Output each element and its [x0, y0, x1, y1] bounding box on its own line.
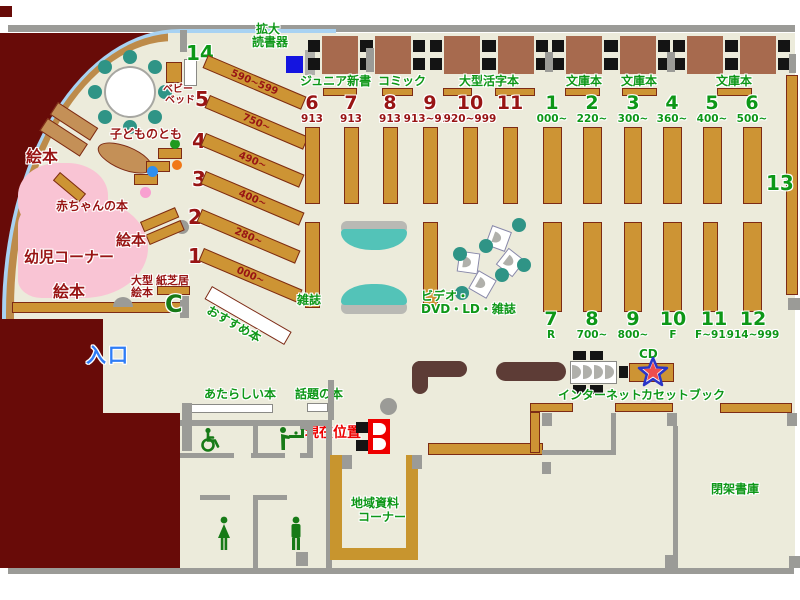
- wall-segment: [253, 495, 258, 568]
- wall-segment: [200, 495, 230, 500]
- stack-shelf: [663, 222, 682, 312]
- label-junior-shinsho: ジュニア新書: [300, 75, 371, 89]
- corner-mark: [0, 6, 12, 17]
- baby-changing-icon: [276, 425, 306, 451]
- pillar: [542, 413, 552, 426]
- pillar: [542, 462, 551, 474]
- service-counter: [496, 362, 566, 381]
- babybed-label-1: ベビー: [163, 84, 193, 96]
- reading-table: [322, 36, 358, 74]
- label-chiiki-2: コーナー: [358, 511, 406, 525]
- label-internet: インターネット: [558, 389, 642, 403]
- men-toilet-icon: [287, 516, 305, 552]
- label-chiiki-1: 地域資料: [351, 497, 399, 511]
- stack-shelf: [703, 127, 722, 204]
- pillar: [366, 48, 374, 72]
- pillar: [788, 298, 800, 310]
- library-floor-map: ベビー ベッド 絵本 子どものとも 赤ちゃんの本 幼児コーナー 絵本 絵本 大型…: [0, 0, 800, 600]
- stack-shelf: [743, 222, 762, 312]
- reading-table: [444, 36, 480, 74]
- stack-shelf: [503, 127, 518, 204]
- pillar: [296, 552, 308, 566]
- label-yoji-corner: 幼児コーナー: [24, 249, 114, 266]
- women-toilet-icon: [215, 516, 233, 552]
- label-kakudai-2: 読書器: [252, 36, 288, 50]
- topical-books-shelf: [307, 403, 328, 412]
- phone-icon: C: [165, 291, 183, 319]
- stack-shelf: [305, 127, 320, 204]
- label-video-2: DVD・LD・雑誌: [421, 303, 516, 317]
- stack-shelf: [583, 222, 602, 312]
- label-zasshi: 雑誌: [297, 294, 321, 308]
- reading-table: [620, 36, 656, 74]
- wall-segment: [328, 380, 334, 420]
- label-ehon-bottom: 絵本: [53, 283, 85, 301]
- wall-segment: [256, 495, 287, 500]
- perimeter-shelf: [615, 403, 673, 412]
- label-wadai: 話題の本: [295, 388, 343, 402]
- pillar: [342, 455, 352, 469]
- label-entrance: 入口: [86, 344, 130, 367]
- stack-shelf: [583, 127, 602, 204]
- reading-table: [740, 36, 776, 74]
- perimeter-shelf: [530, 412, 540, 453]
- label-bunko-2: 文庫本: [621, 75, 657, 89]
- magnifier-reader: [286, 56, 303, 73]
- label-akachan-no-hon: 赤ちゃんの本: [56, 200, 128, 214]
- children-bottom-shelf: [12, 302, 188, 313]
- label-kodomo-no-tomo: 子どものとも: [110, 128, 182, 142]
- stack-shelf: [543, 222, 562, 312]
- label-ehon-top: 絵本: [26, 148, 58, 166]
- stack-shelf: [344, 127, 359, 204]
- perimeter-shelf: [530, 403, 573, 412]
- pillar: [787, 413, 797, 426]
- pillar: [545, 52, 553, 72]
- top-wall: [8, 25, 795, 32]
- chair-dot: [98, 60, 112, 74]
- stack-shelf: [624, 222, 642, 312]
- stack-shelf: [663, 127, 682, 204]
- label-bunko-3: 文庫本: [716, 75, 752, 89]
- chair-dot: [98, 110, 112, 124]
- chair-dot: [148, 110, 162, 124]
- label-current-location: 現在位置: [305, 425, 361, 441]
- low-shelf: [428, 443, 543, 455]
- label-atarashii: あたらしい本: [204, 388, 276, 402]
- label-closed-stacks: 閉架書庫: [711, 483, 759, 497]
- stack-shelf: [703, 222, 718, 312]
- stack-shelf: [423, 127, 438, 204]
- wall-segment: [300, 453, 313, 458]
- label-ogata-katsuji: 大型活字本: [459, 75, 519, 89]
- reading-table: [566, 36, 602, 74]
- pillar: [667, 52, 675, 72]
- step-shelf: [158, 148, 182, 159]
- babybed-label-2: ベッド: [165, 95, 195, 107]
- babybed-shelf: [166, 62, 182, 83]
- label-cassette: カセットブック: [641, 389, 725, 403]
- label-comic: コミック: [378, 75, 426, 89]
- reading-table: [687, 36, 723, 74]
- wall-segment: [611, 413, 616, 452]
- wall-segment: [542, 450, 616, 455]
- stool-pink: [140, 187, 151, 198]
- reading-table: [498, 36, 534, 74]
- perimeter-shelf: [720, 403, 792, 413]
- label-bunko-1: 文庫本: [566, 75, 602, 89]
- label-ogata-ehon-2: 絵本: [131, 287, 153, 300]
- pillar: [665, 555, 676, 568]
- new-books-shelf: [188, 404, 273, 413]
- shelf-number: 13: [766, 172, 794, 195]
- stack-shelf: [383, 127, 398, 204]
- pillar: [789, 54, 796, 73]
- stack-shelf: [463, 127, 478, 204]
- pillar: [789, 556, 800, 568]
- reading-table: [375, 36, 411, 74]
- service-counter: [412, 361, 428, 394]
- chair-dot: [148, 60, 162, 74]
- wall-segment: [673, 426, 678, 568]
- round-table: [104, 66, 156, 118]
- pillar: [667, 413, 677, 426]
- bottom-wall: [8, 568, 794, 574]
- stool-blue: [147, 166, 158, 177]
- stack-shelf: [543, 127, 562, 204]
- stool-orange: [172, 160, 182, 170]
- label-ehon-mid: 絵本: [116, 232, 146, 249]
- cd-star-icon: [637, 356, 669, 388]
- wheelchair-icon: [198, 427, 224, 453]
- wall-segment: [180, 453, 234, 458]
- pillar: [182, 403, 192, 451]
- stack-shelf: [624, 127, 642, 204]
- wall-segment: [251, 453, 285, 458]
- wall-stub-top: [180, 30, 187, 52]
- stack-shelf: [743, 127, 762, 204]
- chair-dot: [88, 85, 102, 99]
- pillar-circle: [380, 398, 397, 415]
- chair-dot: [123, 50, 137, 64]
- pillar: [412, 455, 422, 469]
